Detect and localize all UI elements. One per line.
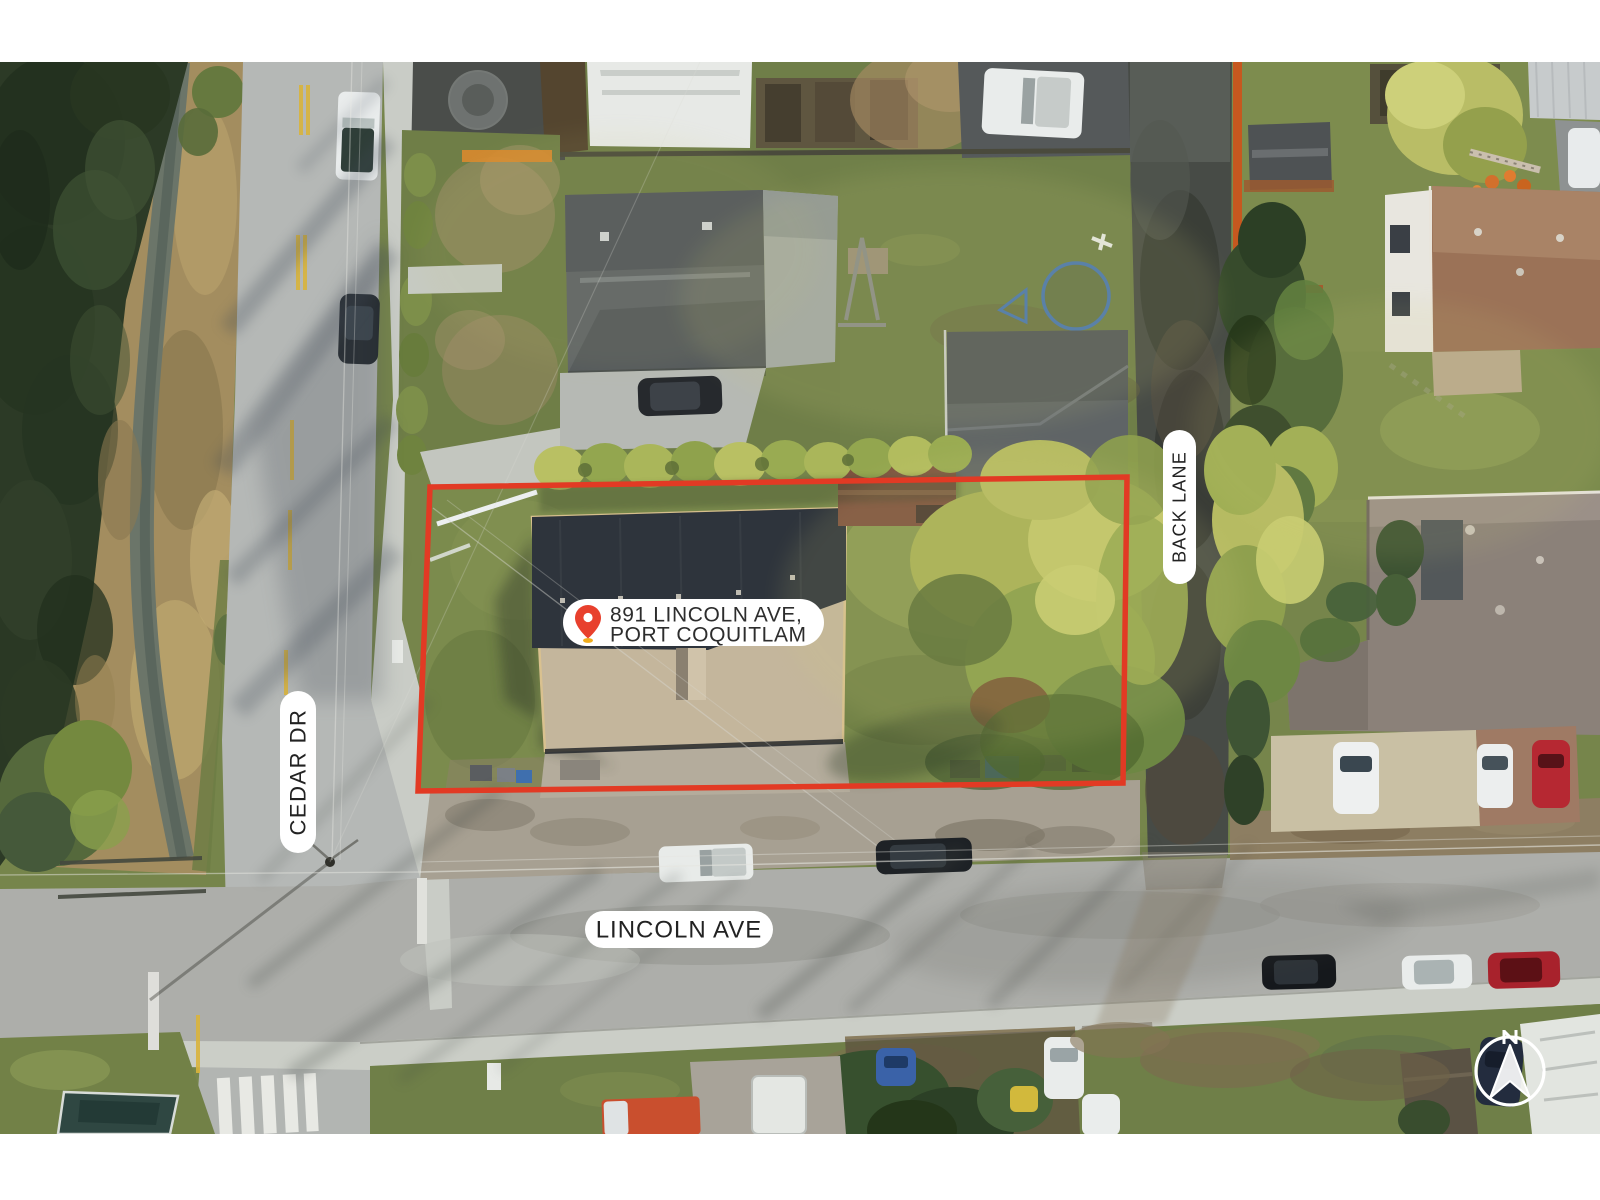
svg-text:CEDAR DR: CEDAR DR [286, 709, 311, 836]
svg-text:BACK LANE: BACK LANE [1170, 451, 1190, 563]
svg-text:LINCOLN AVE: LINCOLN AVE [596, 917, 763, 944]
svg-text:PORT COQUITLAM: PORT COQUITLAM [610, 624, 807, 647]
